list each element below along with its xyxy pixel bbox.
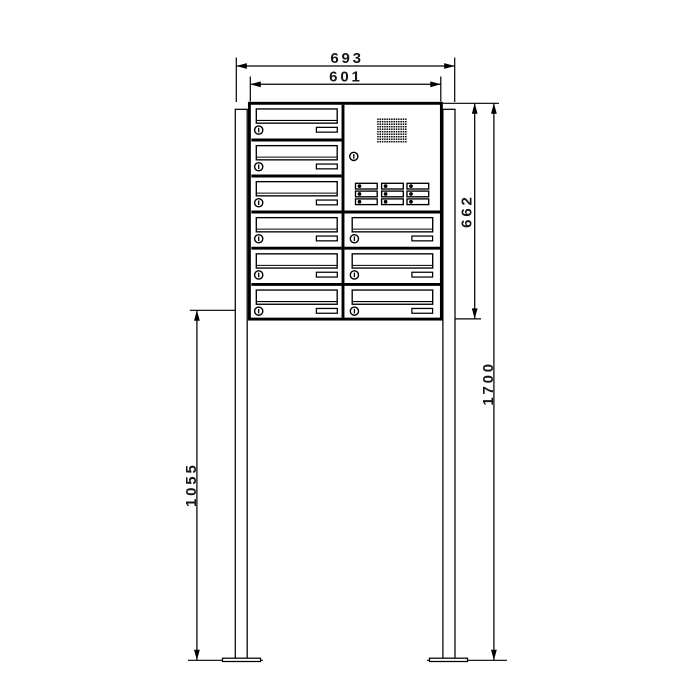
svg-text:1055: 1055 <box>183 462 200 507</box>
svg-text:601: 601 <box>329 68 362 85</box>
svg-text:662: 662 <box>459 194 476 227</box>
svg-text:1700: 1700 <box>480 361 497 406</box>
svg-text:693: 693 <box>330 50 363 67</box>
